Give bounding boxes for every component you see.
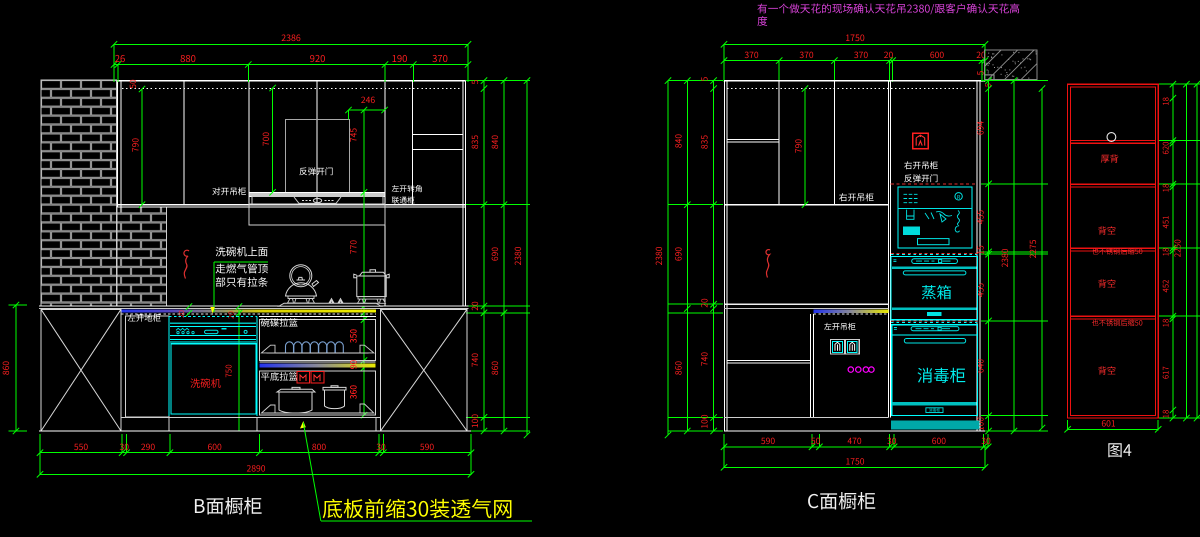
svg-text:880: 880 — [180, 51, 196, 65]
svg-text:30: 30 — [376, 441, 386, 453]
svg-text:底板前缩30装透气网: 底板前缩30装透气网 — [322, 494, 513, 524]
svg-text:背空: 背空 — [1098, 223, 1116, 237]
svg-text:590: 590 — [420, 441, 435, 453]
svg-text:835: 835 — [699, 135, 711, 149]
svg-text:370: 370 — [744, 49, 759, 61]
svg-text:840: 840 — [672, 134, 684, 148]
svg-text:30: 30 — [120, 441, 130, 453]
svg-text:厚背: 厚背 — [1101, 151, 1119, 165]
svg-text:B面橱柜: B面橱柜 — [193, 492, 262, 519]
svg-text:840: 840 — [489, 135, 501, 149]
svg-text:790: 790 — [130, 138, 142, 152]
svg-text:消毒柜: 消毒柜 — [929, 408, 941, 414]
svg-text:90: 90 — [348, 360, 360, 370]
svg-text:18: 18 — [1160, 97, 1171, 106]
svg-text:860: 860 — [672, 361, 684, 375]
svg-text:860: 860 — [0, 361, 12, 375]
svg-text:背空: 背空 — [1098, 363, 1116, 377]
svg-text:碗碟拉篮: 碗碟拉篮 — [261, 315, 299, 329]
svg-text:也不锈钢后缩50: 也不锈钢后缩50 — [1092, 247, 1143, 257]
svg-text:C面橱柜: C面橱柜 — [807, 487, 876, 514]
svg-text:700: 700 — [260, 132, 272, 146]
svg-text:26: 26 — [115, 51, 126, 65]
svg-text:455: 455 — [975, 210, 987, 224]
svg-text:5: 5 — [699, 76, 711, 81]
svg-text:550: 550 — [74, 441, 89, 453]
svg-text:590: 590 — [761, 435, 776, 447]
svg-text:反弹开门: 反弹开门 — [904, 173, 938, 185]
svg-text:451: 451 — [1160, 216, 1171, 229]
svg-text:洗碗机: 洗碗机 — [190, 375, 222, 390]
svg-text:1750: 1750 — [845, 31, 865, 44]
svg-text:20: 20 — [699, 298, 711, 308]
svg-text:600: 600 — [207, 441, 222, 453]
svg-text:反弹开门: 反弹开门 — [299, 166, 333, 178]
svg-text:2890: 2890 — [246, 463, 265, 475]
svg-text:50: 50 — [127, 79, 139, 89]
svg-text:左开吊柜: 左开吊柜 — [824, 322, 856, 333]
svg-text:消毒柜: 消毒柜 — [917, 362, 966, 386]
svg-text:350: 350 — [348, 329, 360, 343]
svg-text:20: 20 — [469, 301, 481, 311]
svg-text:290: 290 — [141, 441, 156, 453]
svg-text:640: 640 — [975, 359, 987, 373]
svg-text:18: 18 — [1160, 248, 1171, 257]
svg-text:2386: 2386 — [281, 31, 301, 44]
svg-text:600: 600 — [932, 435, 947, 447]
svg-text:对开吊柜: 对开吊柜 — [212, 186, 247, 198]
svg-text:18: 18 — [1160, 184, 1171, 193]
svg-text:694: 694 — [975, 121, 987, 135]
svg-text:联通柜: 联通柜 — [392, 195, 416, 206]
svg-text:620: 620 — [1160, 142, 1171, 155]
svg-text:5: 5 — [469, 79, 481, 84]
svg-text:740: 740 — [469, 353, 481, 367]
svg-text:右开吊柜: 右开吊柜 — [904, 159, 939, 171]
svg-text:50: 50 — [811, 435, 821, 447]
svg-text:190: 190 — [392, 51, 408, 65]
svg-text:18: 18 — [1160, 319, 1171, 328]
svg-text:20: 20 — [227, 311, 237, 319]
svg-text:740: 740 — [699, 352, 711, 366]
svg-text:835: 835 — [469, 135, 481, 149]
svg-text:2380: 2380 — [512, 246, 524, 265]
svg-text:690: 690 — [672, 247, 684, 261]
svg-text:右开吊柜: 右开吊柜 — [839, 191, 874, 204]
svg-text:部只有拉条: 部只有拉条 — [215, 275, 268, 290]
svg-text:860: 860 — [489, 361, 501, 375]
svg-text:也不锈钢后缩50: 也不锈钢后缩50 — [1092, 319, 1143, 329]
svg-text:1750: 1750 — [845, 456, 864, 468]
svg-text:690: 690 — [489, 247, 501, 261]
svg-text:左开转角: 左开转角 — [392, 184, 423, 195]
svg-text:601: 601 — [1101, 418, 1116, 430]
svg-text:770: 770 — [348, 240, 360, 254]
svg-text:455: 455 — [975, 283, 987, 297]
svg-text:2380: 2380 — [999, 248, 1011, 267]
svg-text:左开地柜: 左开地柜 — [128, 312, 162, 324]
svg-text:600: 600 — [930, 49, 945, 61]
svg-text:18: 18 — [1160, 410, 1171, 419]
svg-text:370: 370 — [799, 49, 814, 61]
svg-text:5: 5 — [975, 70, 987, 75]
svg-text:蒸箱: 蒸箱 — [921, 281, 952, 303]
svg-text:2250: 2250 — [1171, 239, 1183, 258]
svg-text:920: 920 — [310, 51, 326, 65]
svg-text:有一个做天花的现场确认天花吊2380/跟客户确认天花高: 有一个做天花的现场确认天花吊2380/跟客户确认天花高 — [757, 2, 1020, 17]
svg-text:100: 100 — [469, 414, 481, 428]
svg-text:750: 750 — [224, 364, 235, 378]
svg-text:745: 745 — [348, 128, 360, 142]
svg-text:470: 470 — [847, 435, 862, 447]
svg-text:R: R — [957, 193, 961, 201]
svg-text:图4: 图4 — [1107, 437, 1132, 461]
svg-text:5: 5 — [983, 83, 994, 87]
svg-text:617: 617 — [1160, 366, 1171, 379]
svg-text:246: 246 — [361, 94, 376, 106]
svg-text:度: 度 — [757, 14, 768, 29]
svg-text:370: 370 — [432, 51, 448, 65]
svg-text:370: 370 — [854, 49, 869, 61]
svg-text:790: 790 — [793, 139, 805, 153]
svg-text:360: 360 — [348, 385, 360, 399]
svg-text:100: 100 — [699, 414, 711, 428]
svg-text:背空: 背空 — [1098, 276, 1116, 290]
svg-text:2275: 2275 — [1027, 239, 1039, 258]
svg-text:平底拉篮: 平底拉篮 — [261, 369, 299, 383]
svg-text:洗碗机上面: 洗碗机上面 — [215, 244, 268, 259]
svg-text:30: 30 — [887, 435, 897, 447]
svg-text:30: 30 — [981, 435, 991, 447]
svg-text:20: 20 — [884, 49, 894, 61]
svg-text:800: 800 — [312, 441, 327, 453]
svg-text:452: 452 — [1160, 280, 1171, 293]
svg-text:2380: 2380 — [653, 246, 665, 265]
